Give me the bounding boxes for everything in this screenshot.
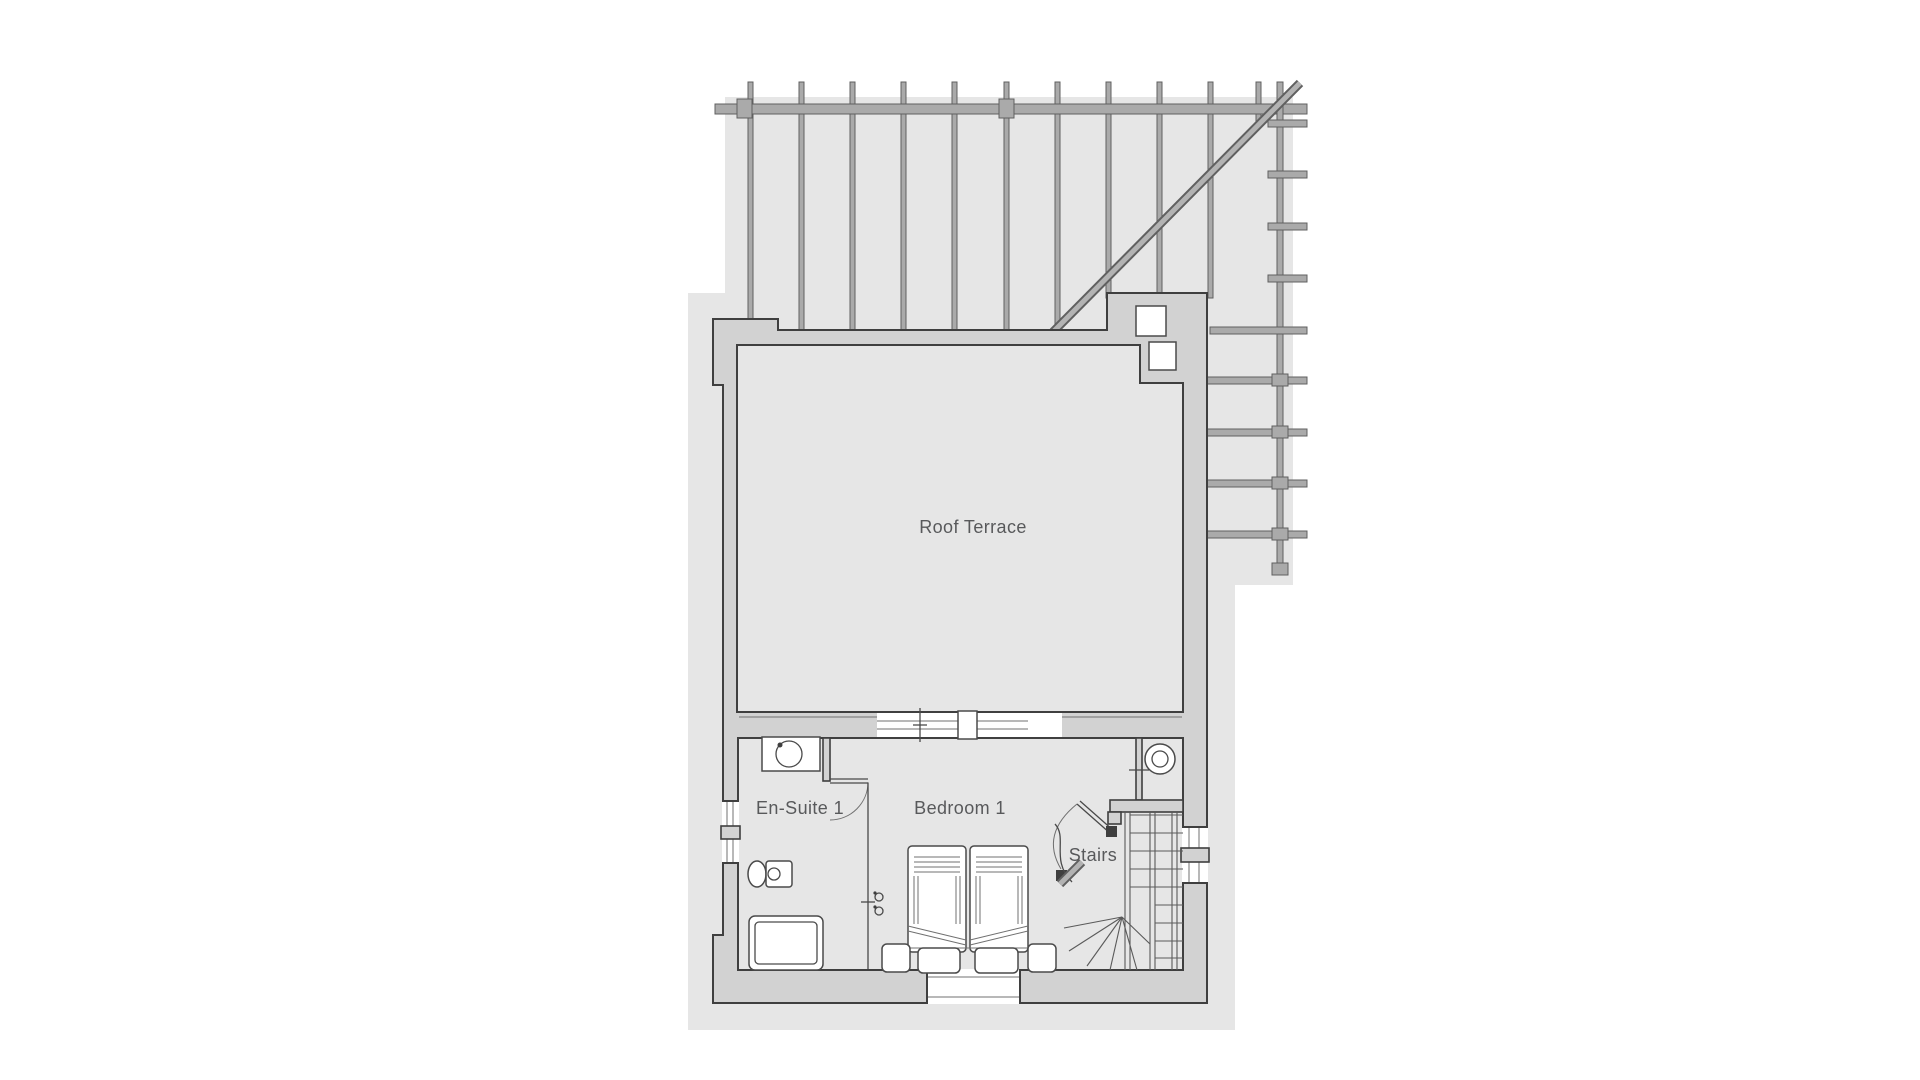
pergola-bracket xyxy=(737,99,752,118)
nightstand-icon xyxy=(1028,944,1056,972)
ottoman-icon xyxy=(918,948,960,973)
ottoman-icon xyxy=(975,948,1018,973)
bottom-window xyxy=(927,969,1020,1004)
left-window xyxy=(721,801,740,863)
bath-icon xyxy=(749,916,823,970)
stair-landing-step xyxy=(1108,812,1121,824)
ensuite-partition xyxy=(823,738,830,781)
pergola-bracket xyxy=(999,99,1014,118)
bedroom-label: Bedroom 1 xyxy=(914,798,1006,818)
window-mullion xyxy=(721,826,740,839)
roof-terrace-label: Roof Terrace xyxy=(919,517,1027,537)
terrace-window-wall xyxy=(877,708,1062,742)
nightstand-icon xyxy=(882,944,910,972)
column-icon xyxy=(1145,744,1175,774)
vanity-basin-icon xyxy=(762,737,820,771)
right-window xyxy=(1181,827,1209,883)
pier-square xyxy=(1136,306,1166,336)
floor-plan-page: Roof Terrace En-Suite 1 Bedroom 1 Stairs xyxy=(0,0,1920,1080)
toilet-icon xyxy=(748,861,792,887)
window-mullion-post xyxy=(958,711,977,739)
pier-square xyxy=(1149,342,1176,370)
stairs-label: Stairs xyxy=(1069,845,1117,865)
stair-landing-wall xyxy=(1110,800,1183,812)
window-mullion xyxy=(1181,848,1209,862)
en-suite-label: En-Suite 1 xyxy=(756,798,844,818)
floor-plan-svg: Roof Terrace En-Suite 1 Bedroom 1 Stairs xyxy=(0,0,1920,1080)
column-niche-wall xyxy=(1136,738,1142,800)
